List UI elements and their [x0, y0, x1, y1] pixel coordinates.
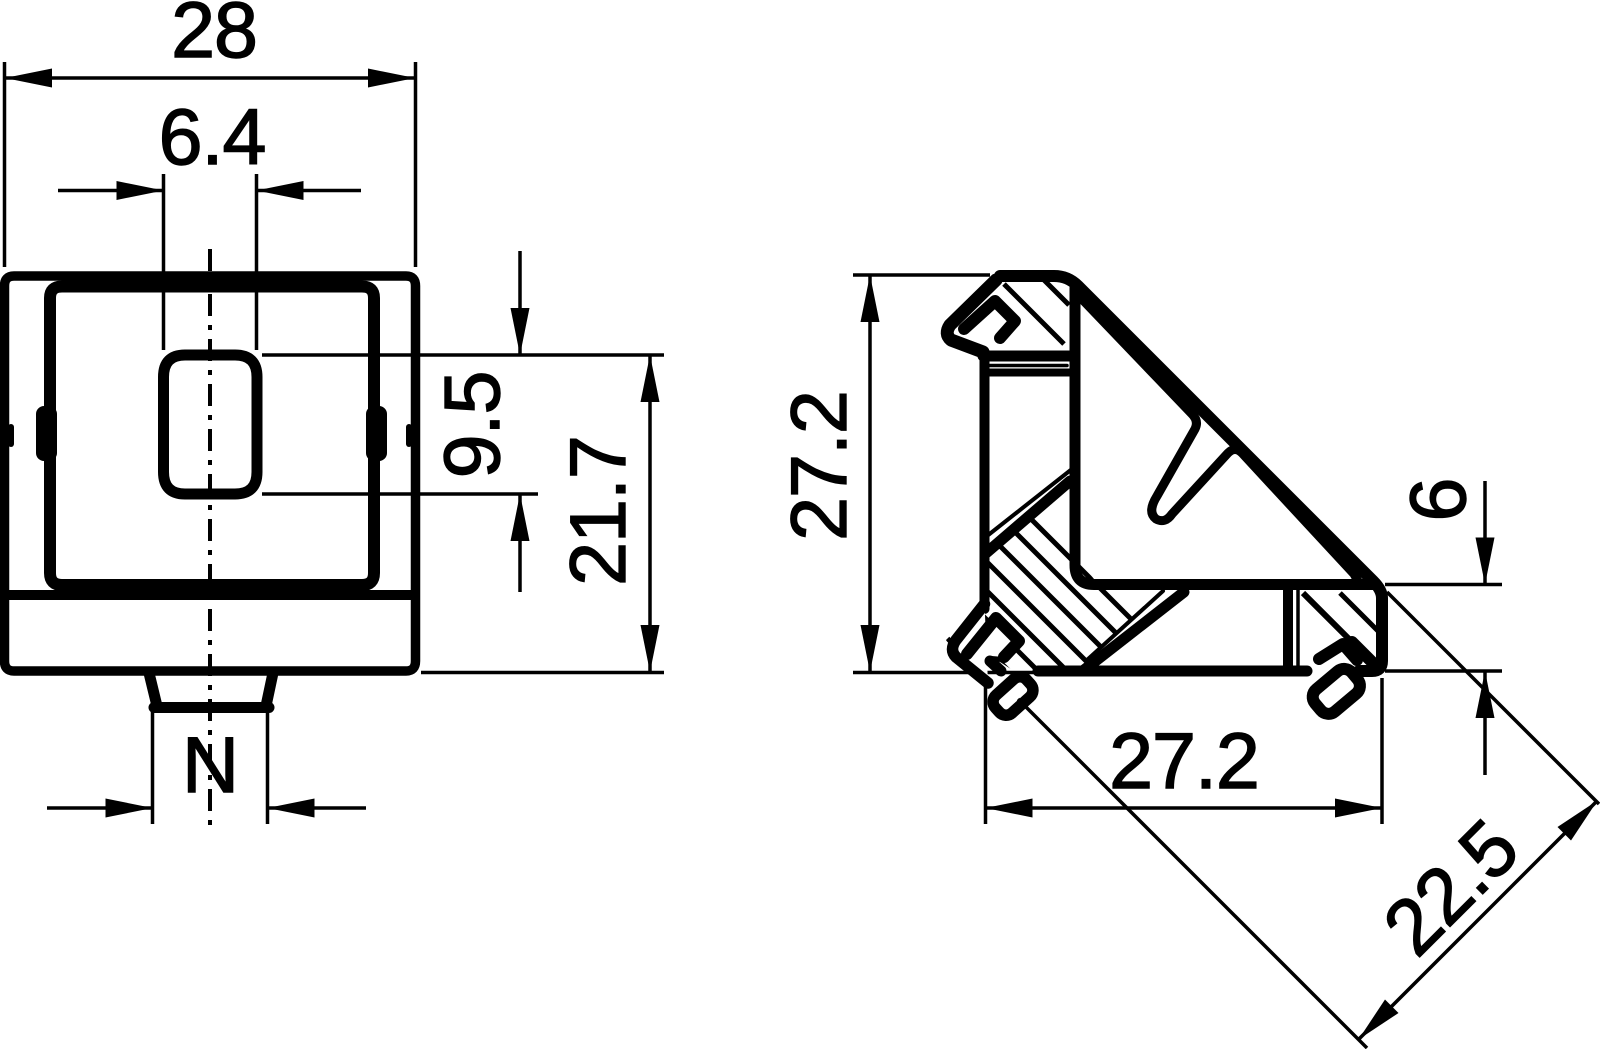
svg-text:21.7: 21.7 [553, 436, 642, 586]
svg-text:9.5: 9.5 [427, 372, 516, 479]
svg-text:27.2: 27.2 [774, 391, 863, 541]
svg-text:N: N [182, 720, 238, 809]
svg-text:6.4: 6.4 [159, 92, 266, 181]
svg-text:27.2: 27.2 [1109, 716, 1259, 805]
svg-text:28: 28 [171, 0, 257, 74]
svg-text:6: 6 [1393, 479, 1482, 522]
